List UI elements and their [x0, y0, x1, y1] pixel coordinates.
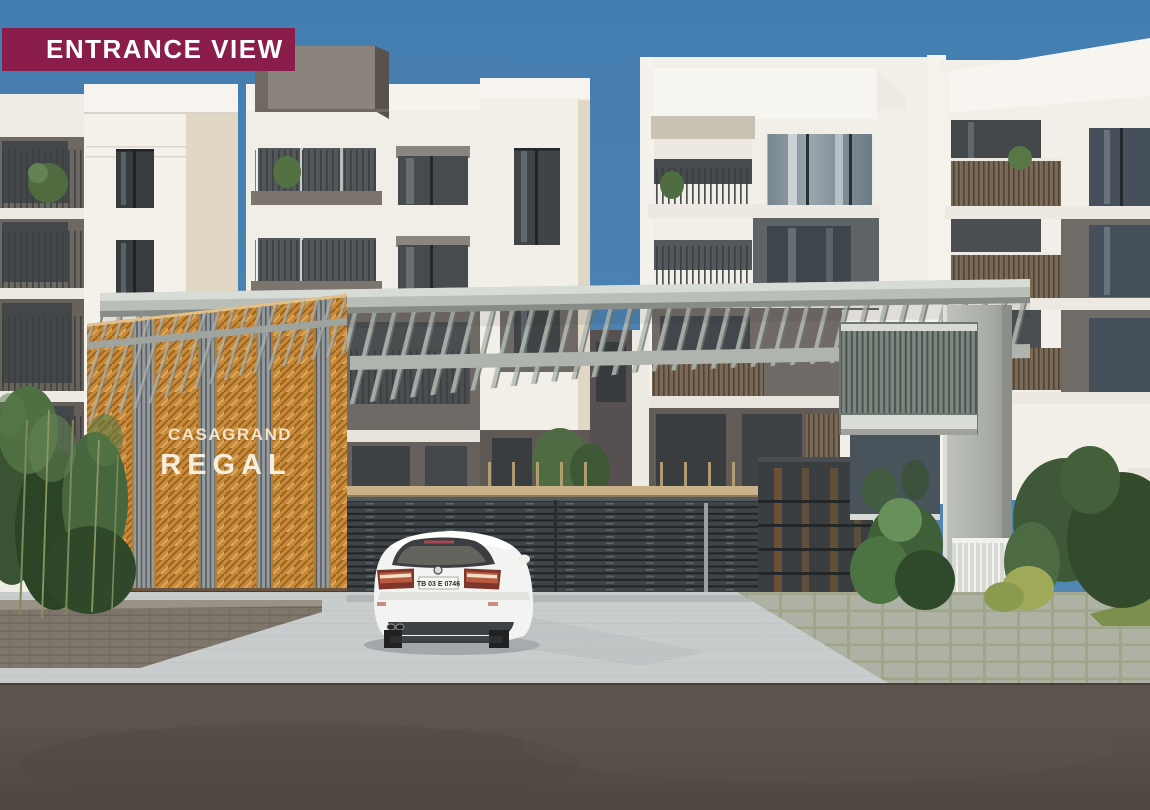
svg-text:REGAL: REGAL [160, 449, 292, 481]
svg-text:CASAGRAND: CASAGRAND [168, 425, 292, 444]
svg-text:TB 03 E 0746: TB 03 E 0746 [417, 581, 460, 588]
